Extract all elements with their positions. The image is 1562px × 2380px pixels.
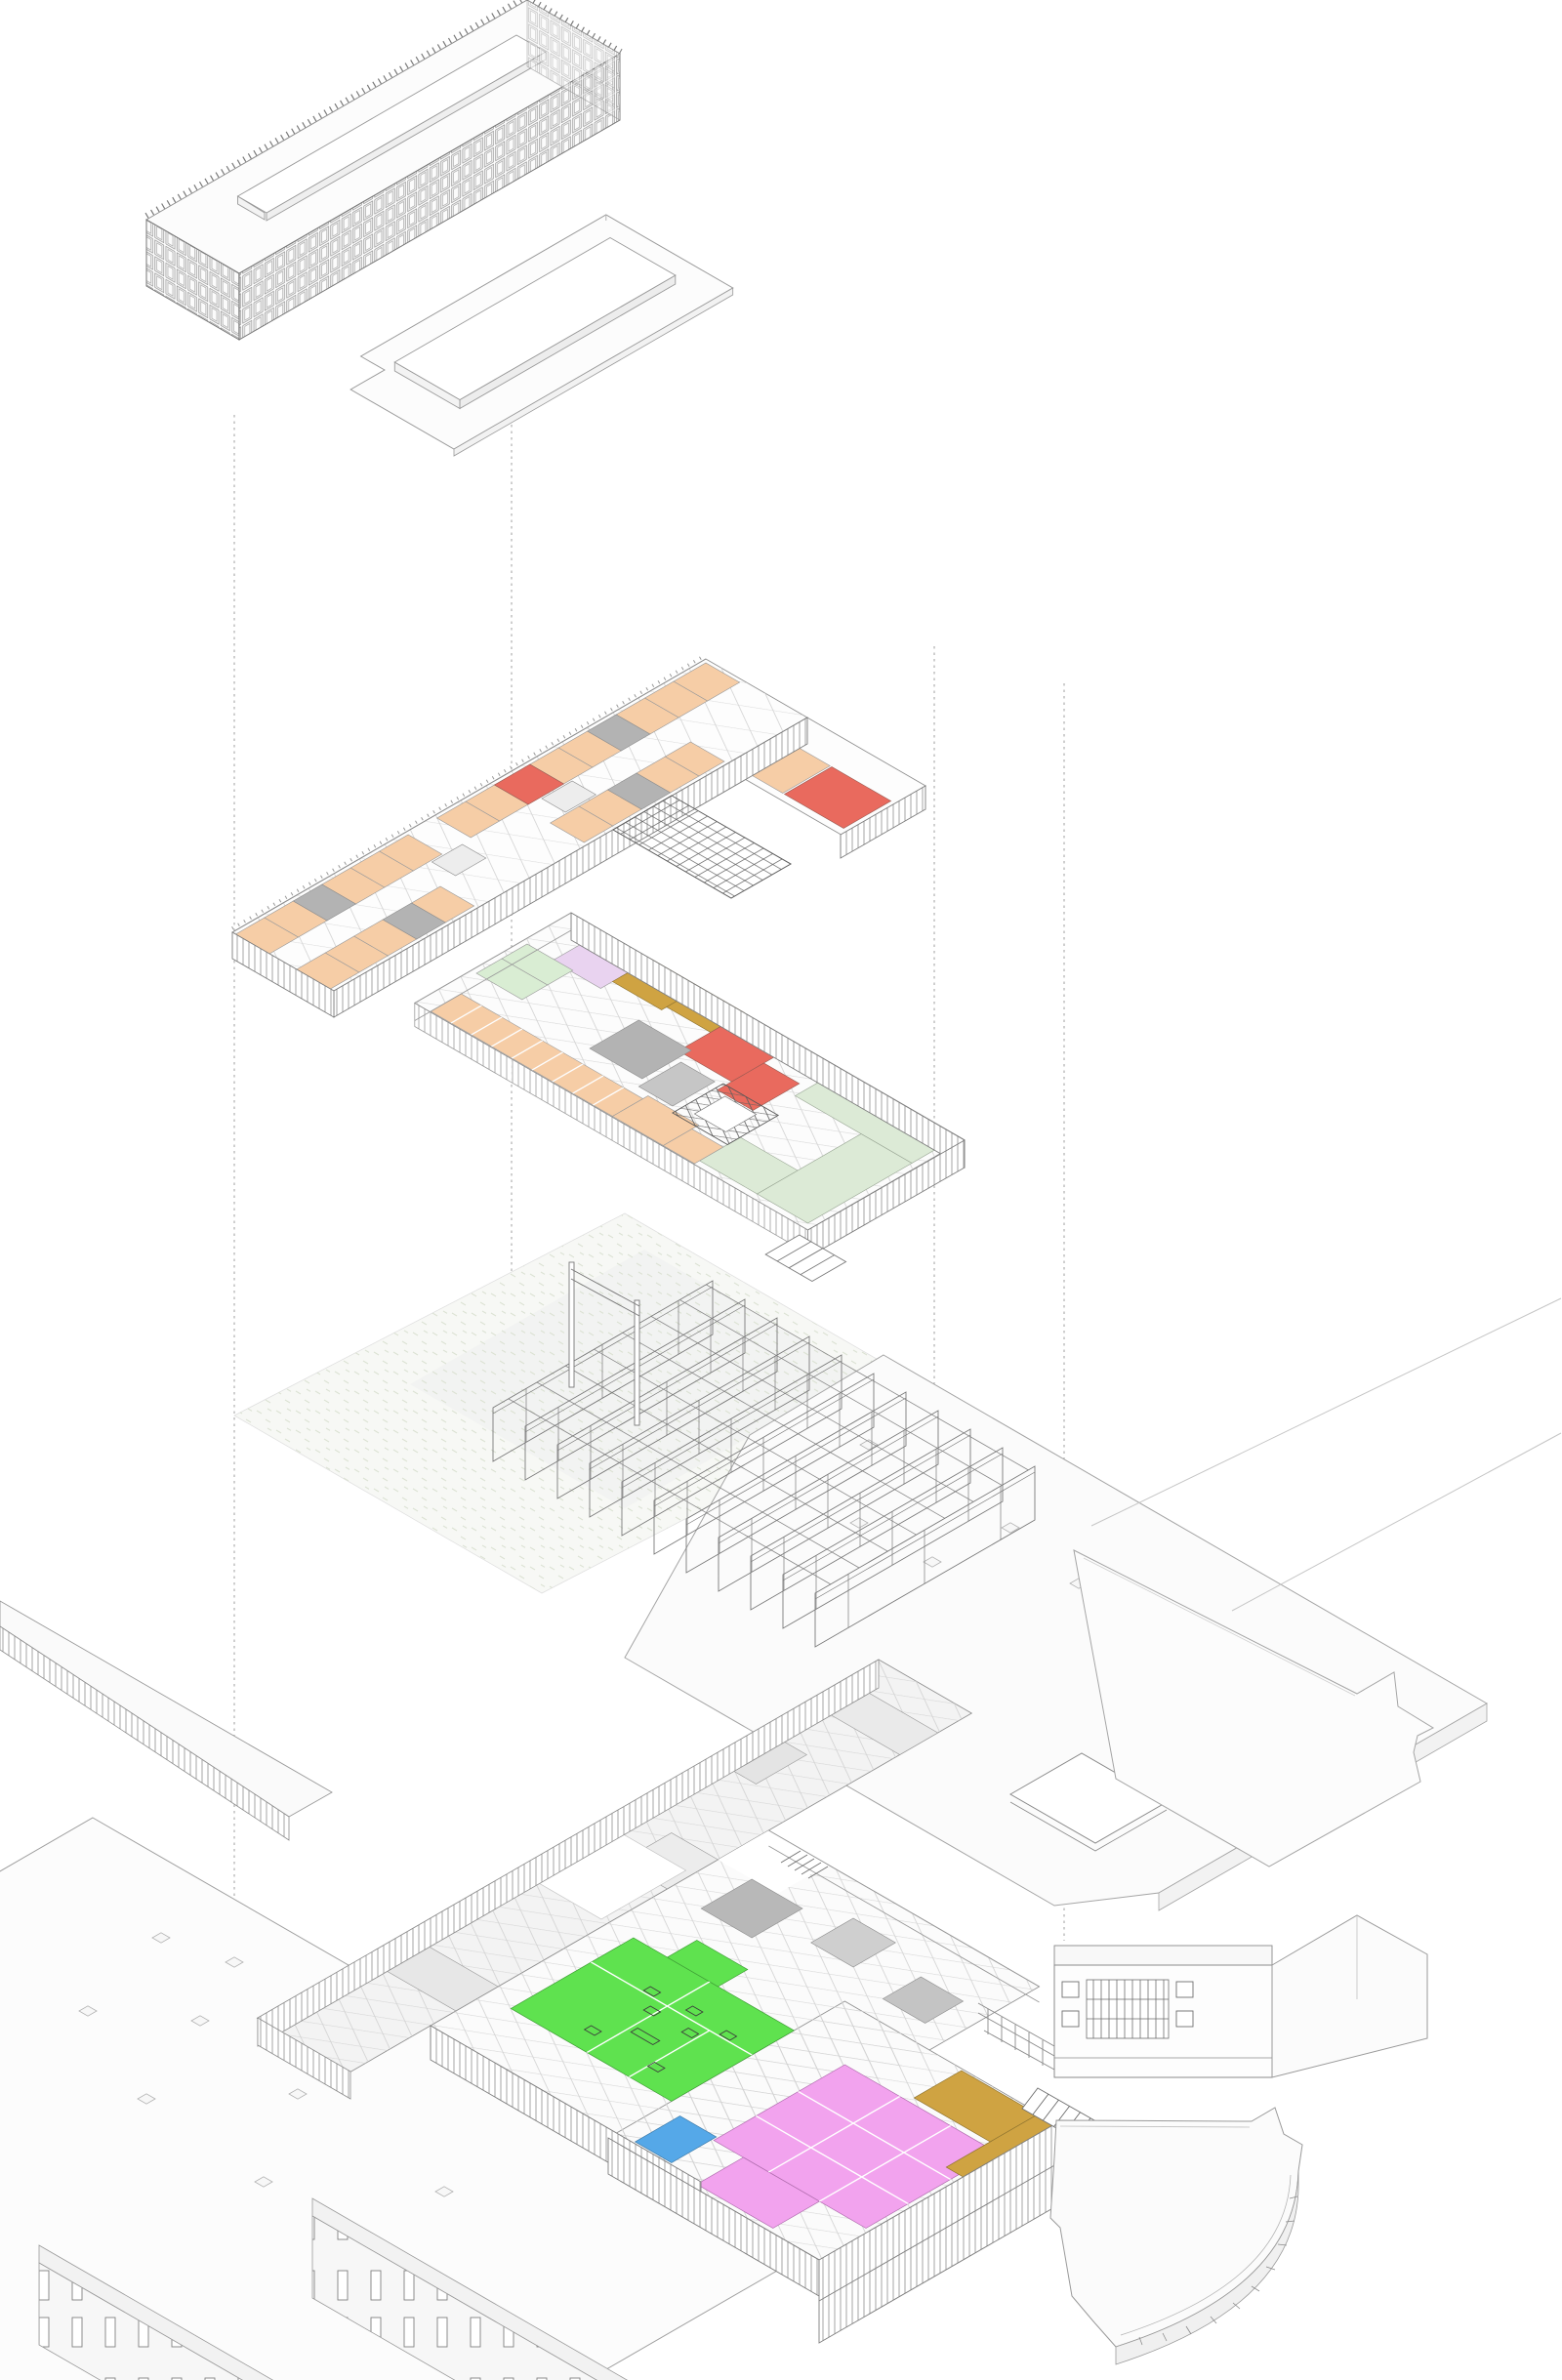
- historic-side-volume: [1272, 1915, 1427, 2077]
- fan-roof: [1050, 2108, 1302, 2347]
- context-fan-building: [1050, 2108, 1302, 2364]
- layer-roof-plan: [350, 215, 733, 456]
- layer-first-floor-plan: [415, 913, 965, 1282]
- exploded-axonometric-diagram: Exploded axonometric architectural drawi…: [0, 0, 1562, 2380]
- context-historic-building: [978, 1915, 1427, 2077]
- context-left-link-bar: [0, 1601, 332, 1840]
- historic-central-glazing: [1087, 1980, 1169, 2038]
- historic-roof-band: [1054, 1946, 1272, 1965]
